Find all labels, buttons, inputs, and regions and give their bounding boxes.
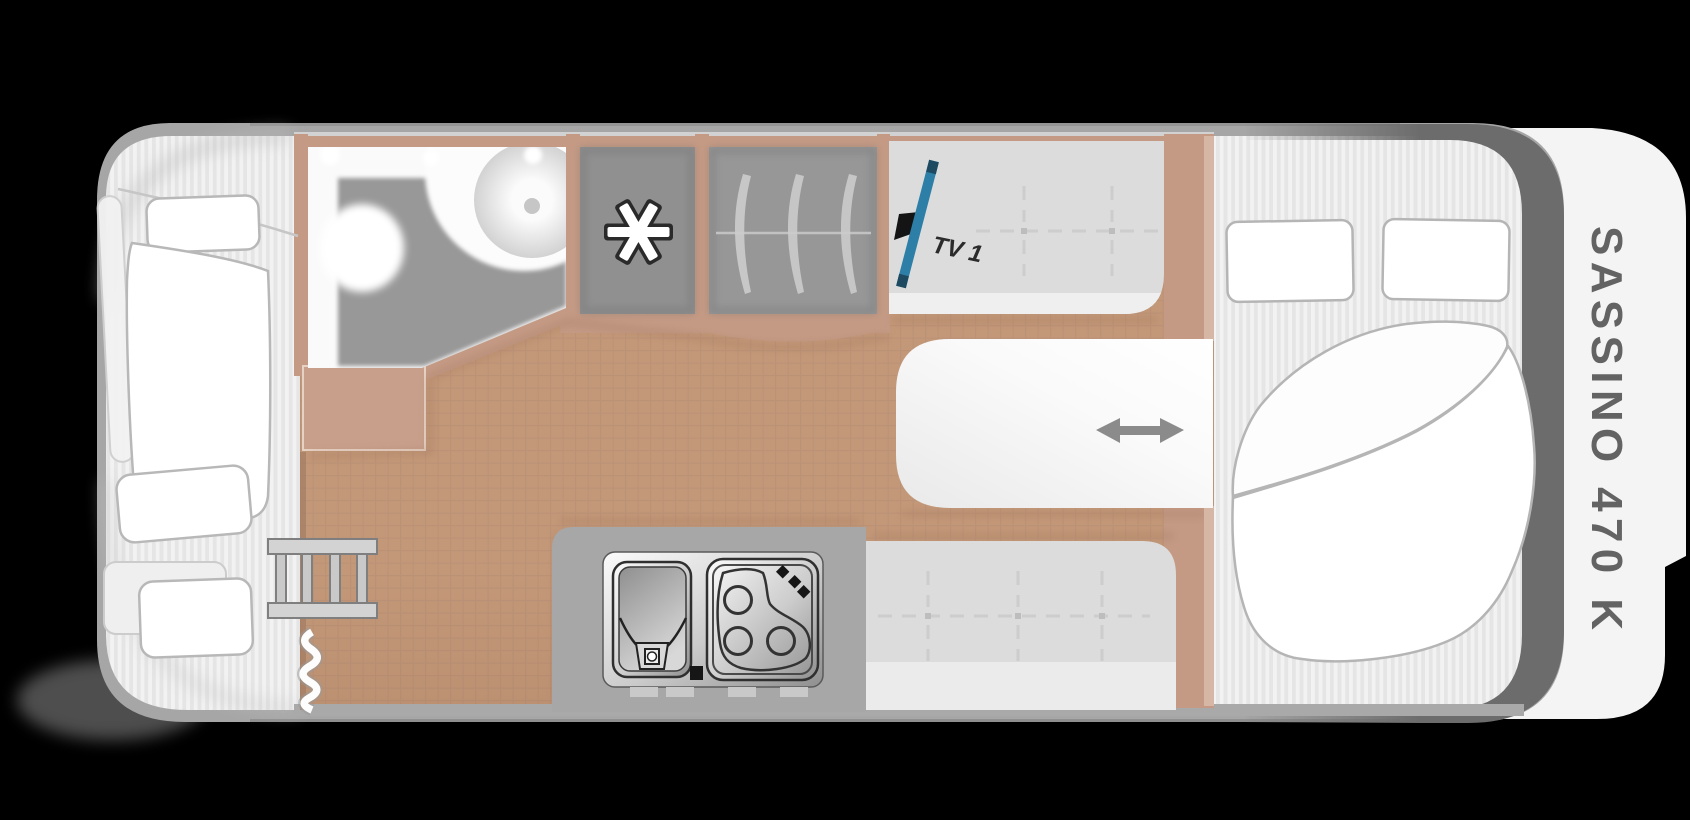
svg-text:SASSINO 470 K: SASSINO 470 K <box>1582 226 1631 636</box>
